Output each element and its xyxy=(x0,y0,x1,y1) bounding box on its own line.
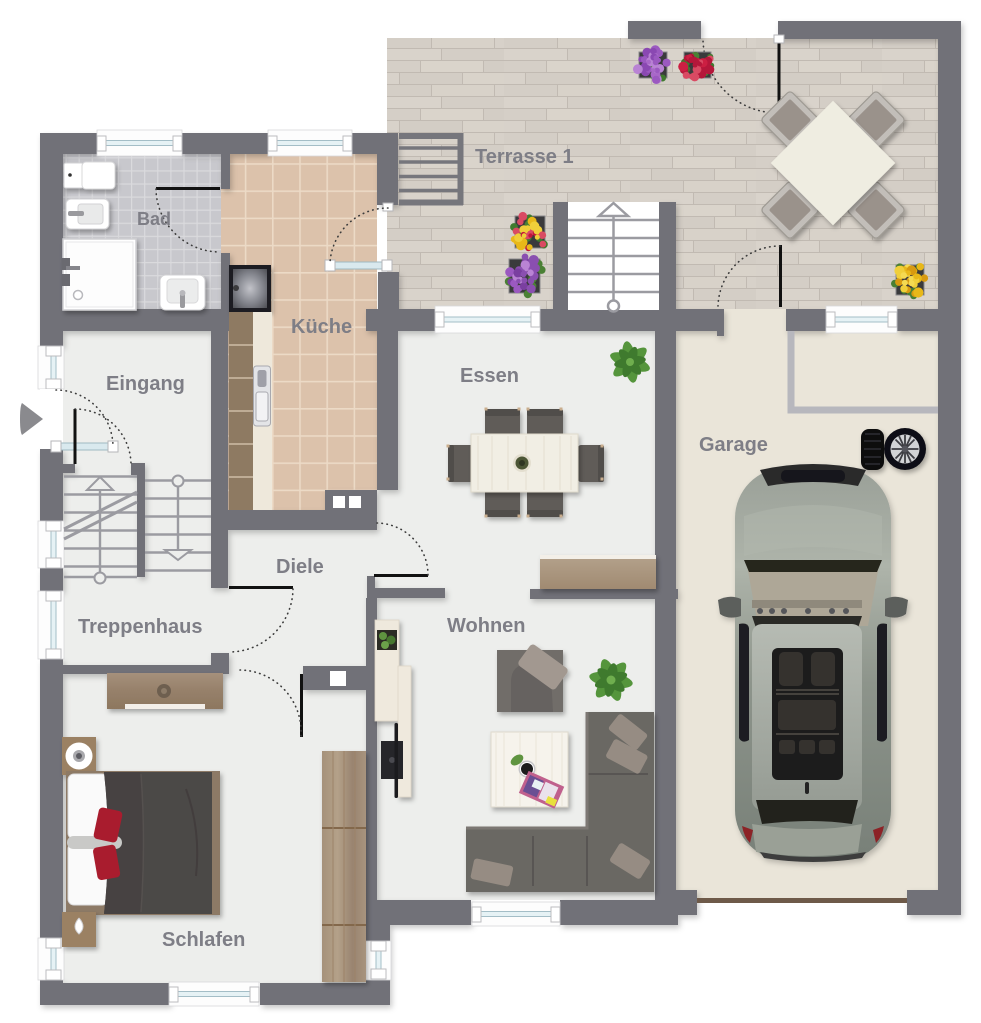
svg-text:Wohnen: Wohnen xyxy=(447,615,526,637)
svg-text:Essen: Essen xyxy=(460,365,519,387)
svg-text:Garage: Garage xyxy=(699,434,768,456)
svg-text:Treppenhaus: Treppenhaus xyxy=(78,616,202,638)
svg-text:Eingang: Eingang xyxy=(106,373,185,395)
svg-text:Terrasse 1: Terrasse 1 xyxy=(475,146,574,168)
svg-text:Schlafen: Schlafen xyxy=(162,929,245,951)
svg-text:Diele: Diele xyxy=(276,556,324,578)
svg-text:Küche: Küche xyxy=(291,316,352,338)
svg-text:Bad: Bad xyxy=(137,209,171,229)
